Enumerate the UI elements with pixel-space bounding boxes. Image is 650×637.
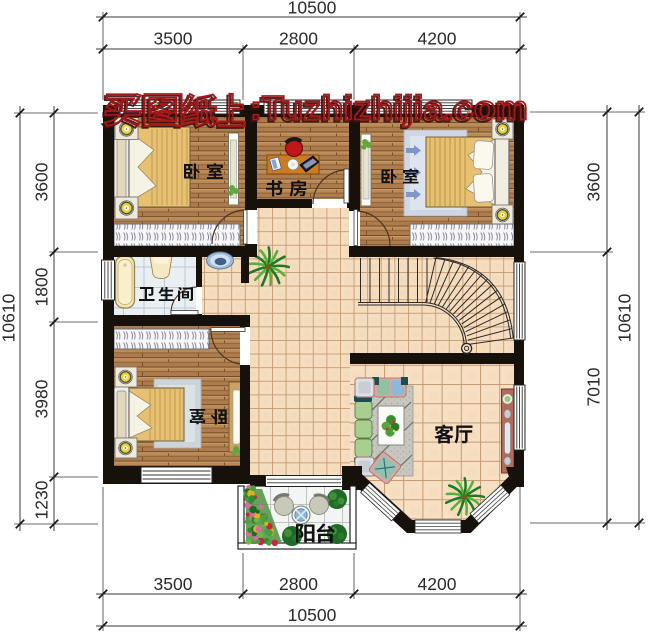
svg-text:2800: 2800	[279, 29, 318, 49]
svg-text:1800: 1800	[32, 267, 52, 306]
svg-text:3600: 3600	[584, 162, 604, 201]
svg-text:3500: 3500	[154, 29, 193, 49]
svg-text:1230: 1230	[32, 480, 52, 519]
svg-text:10500: 10500	[288, 605, 337, 625]
svg-text:10500: 10500	[288, 0, 337, 18]
svg-text:10610: 10610	[615, 293, 635, 342]
svg-text:10610: 10610	[0, 293, 19, 342]
svg-text:4200: 4200	[418, 574, 457, 594]
svg-text:2800: 2800	[279, 574, 318, 594]
svg-text:3980: 3980	[32, 379, 52, 418]
svg-text:3500: 3500	[154, 574, 193, 594]
svg-text::Tuzhizhijia.com: :Tuzhizhijia.com	[250, 90, 528, 128]
svg-text:3600: 3600	[32, 162, 52, 201]
svg-text:7010: 7010	[584, 367, 604, 406]
svg-text:4200: 4200	[418, 29, 457, 49]
